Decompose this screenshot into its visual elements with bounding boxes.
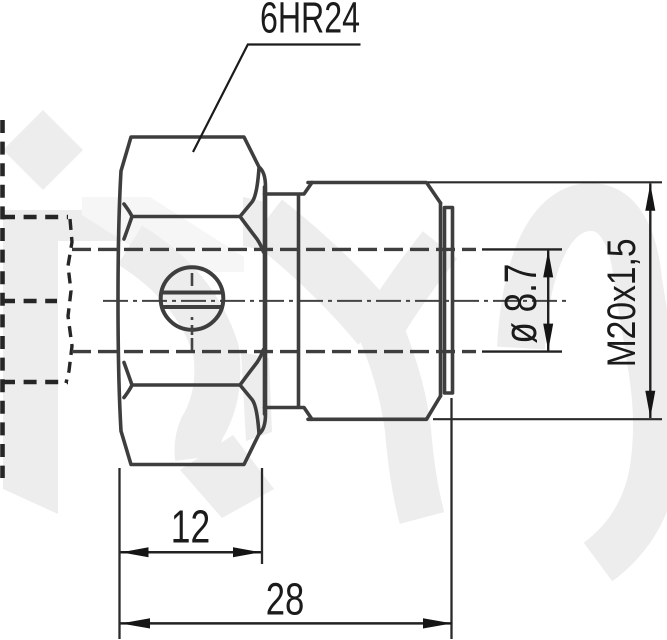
- svg-text:28: 28: [266, 574, 305, 624]
- svg-text:ø 8.7: ø 8.7: [495, 264, 546, 344]
- svg-text:M20x1,5: M20x1,5: [599, 238, 643, 367]
- svg-text:6HR24: 6HR24: [260, 0, 360, 43]
- svg-text:12: 12: [171, 501, 210, 553]
